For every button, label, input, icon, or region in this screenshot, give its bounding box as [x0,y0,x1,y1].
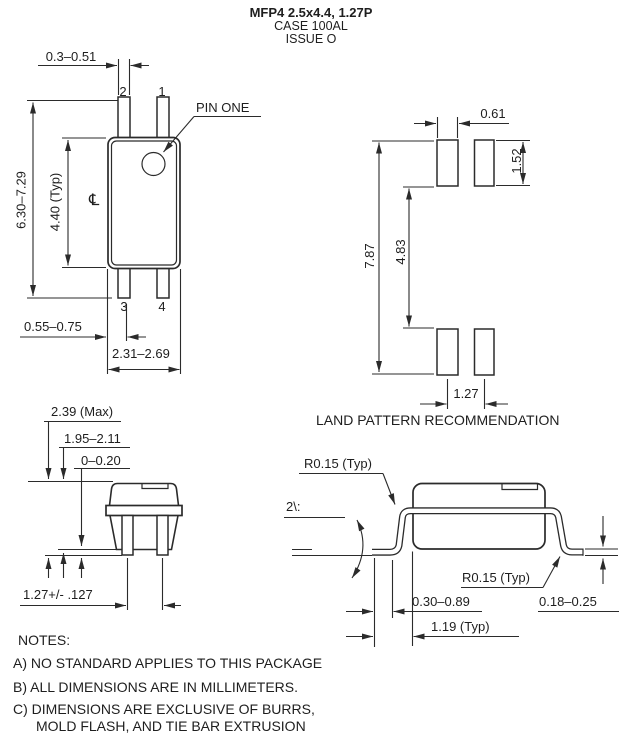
pin-one-callout: PIN ONE [196,101,249,115]
pad-top-right [475,140,495,186]
note-b: B) ALL DIMENSIONS ARE IN MILLIMETERS. [13,680,298,695]
dim-standoff: 0–0.20 [81,454,121,468]
dim-pattern-inner: 4.83 [394,235,408,269]
dim-lead-pitch: 1.27+/- .127 [23,588,93,602]
package-drawing-page: MFP4 2.5x4.4, 1.27P CASE 100AL ISSUE O 0… [0,0,622,750]
issue-revision: ISSUE O [0,33,622,46]
dim-lead-length: 1.19 (Typ) [431,620,490,634]
end-view-lead-right [157,516,168,556]
notes-heading: NOTES: [18,633,70,648]
pin-1-label: 1 [155,85,169,99]
pad-bottom-right [475,329,495,375]
dim-body-height: 1.95–2.11 [64,432,121,446]
dim-pad-width: 0.61 [474,107,512,121]
dim-lead-angle: 2\: [286,500,300,514]
pin-2-label: 2 [116,85,130,99]
dim-body-length: 4.40 (Typ) [48,165,62,240]
note-c-line1: C) DIMENSIONS ARE EXCLUSIVE OF BURRS, [13,702,315,717]
dim-max-height: 2.39 (Max) [51,405,113,419]
pad-top-left [437,140,458,186]
dim-pad-pitch: 1.27 [447,387,485,401]
dim-pin-edge-offset: 0.55–0.75 [24,320,82,334]
drawing-title: MFP4 2.5x4.4, 1.27P [0,6,622,20]
dim-pattern-overall: 7.87 [363,239,377,273]
pin-3 [118,268,130,298]
lead-frame-collar [106,506,182,516]
pad-bottom-left [437,329,458,375]
pin-1 [157,97,169,138]
note-c-line2: MOLD FLASH, AND TIE BAR EXTRUSION [36,719,306,734]
note-a: A) NO STANDARD APPLIES TO THIS PACKAGE [13,656,322,671]
dim-foot-length: 0.30–0.89 [412,595,470,609]
end-view-lead-left [122,516,133,556]
land-pattern-caption: LAND PATTERN RECOMMENDATION [316,413,559,428]
dim-radius-top: R0.15 (Typ) [304,457,372,471]
dim-pad-height: 1.52 [510,144,524,178]
end-view-drawing [20,422,182,611]
pin-2 [118,97,130,138]
drawing-canvas [0,0,622,750]
pin-3-label: 3 [117,300,131,314]
dim-radius-bottom: R0.15 (Typ) [462,571,530,585]
centerline-symbol: ℄ [89,194,99,208]
pin-4-label: 4 [155,300,169,314]
dim-body-width: 2.31–2.69 [112,347,170,361]
title-block: MFP4 2.5x4.4, 1.27P CASE 100AL ISSUE O [0,6,622,46]
dim-overall-length: 6.30–7.29 [15,167,29,234]
dim-pin-width: 0.3–0.51 [36,50,106,64]
pin-4 [157,268,169,298]
dim-lead-thickness: 0.18–0.25 [539,595,597,609]
package-body-side-view [413,484,545,550]
